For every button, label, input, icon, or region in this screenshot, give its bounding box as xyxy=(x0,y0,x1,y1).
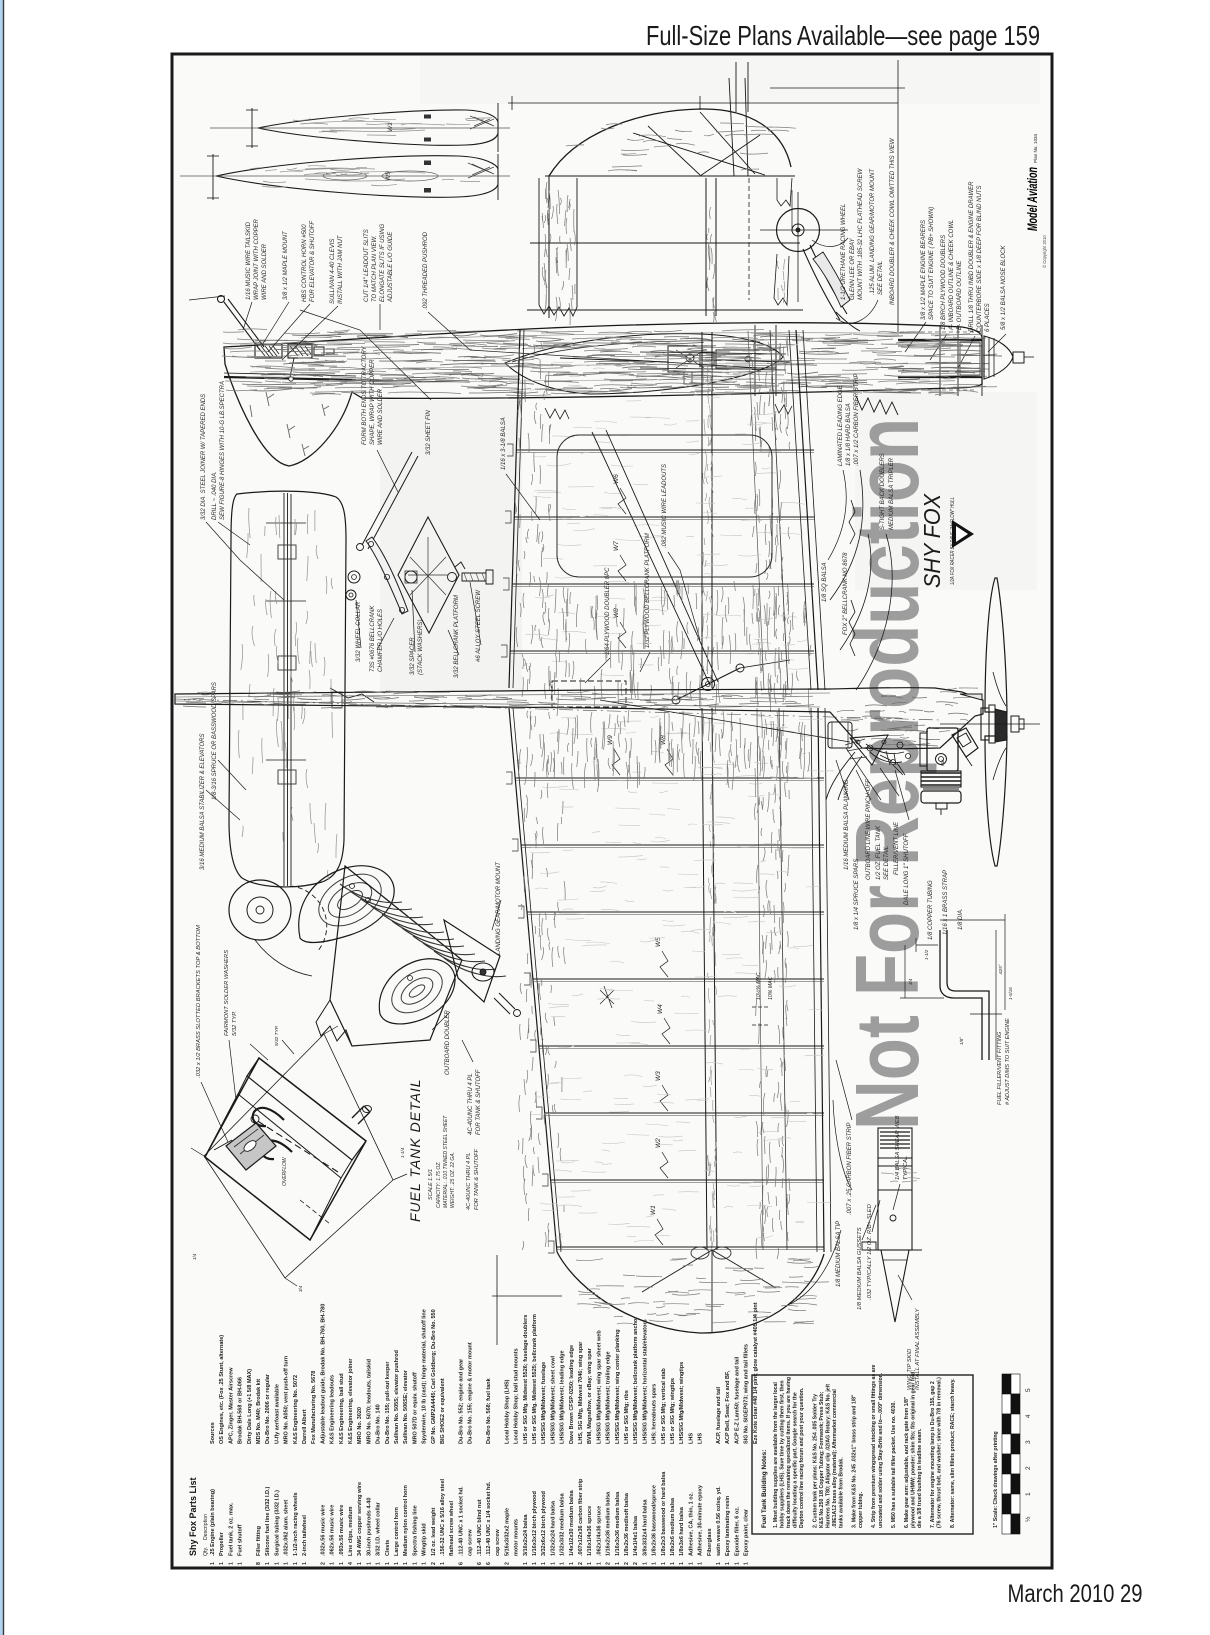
svg-text:K&S Engineering No. 5072: K&S Engineering No. 5072 xyxy=(293,1375,299,1444)
svg-text:OUTBOARD DOUBLER: OUTBOARD DOUBLER xyxy=(445,1010,451,1075)
svg-text:DRILL 1/8 THRU INBD DOUBLER &: DRILL 1/8 THRU INBD DOUBLER & ENGINE DRA… xyxy=(969,181,975,332)
svg-text:SEE DETAIL: SEE DETAIL xyxy=(884,846,890,880)
svg-text:plywood and UHMW; powder; shim: plywood and UHMW; powder; shim fits; fit… xyxy=(911,1370,917,1528)
svg-text:3/8 x 1/2 MAPLE MOUNT: 3/8 x 1/2 MAPLE MOUNT xyxy=(283,230,289,300)
svg-text:6: 6 xyxy=(477,1562,483,1565)
svg-text:MATERIAL: .010 TINNED STEEL: MATERIAL: .010 TINNED STEEL SHEET xyxy=(443,1115,449,1208)
svg-text:Eze Kote clear #40 1/4 pint; g: Eze Kote clear #40 1/4 pint; glow cataly… xyxy=(753,1302,759,1444)
svg-text:3/4: 3/4 xyxy=(298,1285,303,1292)
svg-text:1/8 DIA.: 1/8 DIA. xyxy=(958,908,964,930)
svg-text:MOUNT WITH .185-32 LHC FLATHEA: MOUNT WITH .185-32 LHC FLATHEAD SCREW xyxy=(858,167,864,300)
svg-text:GP No. GMP2A4445; Carl Goldber: GP No. GMP2A4445; Carl Goldberg; Du-Bro … xyxy=(431,1309,437,1444)
svg-text:6 PLACES: 6 PLACES xyxy=(985,303,991,332)
svg-text:5: 5 xyxy=(1025,1388,1032,1392)
svg-text:LHS or SIG Mfg. Midwest 5526;: LHS or SIG Mfg. Midwest 5526; fuselage d… xyxy=(523,1315,529,1444)
svg-text:Du-Bro No. 2006 or regular: Du-Bro No. 2006 or regular xyxy=(265,1373,271,1444)
svg-text:3/8x3/32x4 hard balsa: 3/8x3/32x4 hard balsa xyxy=(642,1498,648,1556)
svg-text:.007 x 1/2 CARBON FIBER STRIP: .007 x 1/2 CARBON FIBER STRIP xyxy=(854,374,860,466)
svg-text:W2: W2 xyxy=(655,1138,662,1148)
svg-text:GLENN LEE OR EBAY: GLENN LEE OR EBAY xyxy=(850,237,856,300)
svg-text:copper tubing.: copper tubing. xyxy=(858,1491,864,1528)
svg-text:.09E1A12 brass alloy (material: .09E1A12 brass alloy (material); Afterma… xyxy=(832,1389,838,1528)
svg-text:1: 1 xyxy=(716,1562,722,1565)
svg-text:Brodak BH-568 or BH-066: Brodak BH-568 or BH-066 xyxy=(238,1377,244,1444)
svg-text:2: 2 xyxy=(606,1562,612,1565)
svg-text:FUEL TANK DETAIL: FUEL TANK DETAIL xyxy=(407,1078,423,1222)
svg-text:3/4: 3/4 xyxy=(908,978,913,985)
svg-text:2: 2 xyxy=(578,1562,584,1565)
svg-text:LHS; hereabouts spars: LHS; hereabouts spars xyxy=(652,1384,658,1444)
svg-text:1: 1 xyxy=(541,1562,547,1565)
svg-text:1: 1 xyxy=(615,1562,621,1565)
svg-text:LHS/SIG Mfg/Midwest; trailing: LHS/SIG Mfg/Midwest; trailing edge xyxy=(606,1351,612,1444)
svg-text:Medium nylon control horn: Medium nylon control horn xyxy=(403,1484,409,1556)
svg-text:1/32x3/32 medium balsa: 1/32x3/32 medium balsa xyxy=(560,1492,566,1556)
svg-text:1/8°: 1/8° xyxy=(959,1037,964,1045)
svg-text:Shy Fox Parts List: Shy Fox Parts List xyxy=(188,1477,198,1556)
svg-text:MEDIUM BALSA TRIPLER: MEDIUM BALSA TRIPLER xyxy=(889,457,895,530)
svg-text:K&S No.250 1/8 Copper Tubing;: K&S No.250 1/8 Copper Tubing; Formwork; … xyxy=(819,1391,825,1528)
svg-text:1: 1 xyxy=(744,1562,750,1565)
svg-text:Description: Description xyxy=(203,1514,209,1540)
svg-text:Fuel Tank Building Notes:: Fuel Tank Building Notes: xyxy=(761,1450,768,1528)
svg-text:.062x1/4x36 spruce: .062x1/4x36 spruce xyxy=(596,1506,602,1556)
svg-text:1/8-3/16 SPRUCE OR BASSWOOD SP: 1/8-3/16 SPRUCE OR BASSWOOD SPARS xyxy=(212,682,218,800)
svg-text:MRO No. 5070; leadouts, tailsk: MRO No. 5070; leadouts, tailskid xyxy=(366,1359,372,1444)
svg-text:3: 3 xyxy=(1025,1440,1032,1444)
svg-text:2: 2 xyxy=(504,1562,510,1565)
svg-text:8: 8 xyxy=(256,1562,262,1565)
svg-text:Sources: Sources xyxy=(210,1422,216,1444)
svg-text:Epoxide filler, 6 oz.: Epoxide filler, 6 oz. xyxy=(734,1506,740,1556)
svg-text:.112-40 UNC x 1 socket hd.: .112-40 UNC x 1 socket hd. xyxy=(458,1486,464,1556)
svg-text:.25 Engine (plain bearing): .25 Engine (plain bearing) xyxy=(210,1489,216,1556)
svg-text:APC, Zinger, Master Airscrew: APC, Zinger, Master Airscrew xyxy=(228,1367,234,1444)
svg-text:30-inch pushrods 4-40: 30-inch pushrods 4-40 xyxy=(366,1498,372,1556)
svg-text:3/32 I.D. wheel collar: 3/32 I.D. wheel collar xyxy=(376,1501,382,1556)
svg-text:5/16x3/32x2 maple: 5/16x3/32x2 maple xyxy=(504,1508,510,1556)
svg-text:1/16 MUSIC WIRE TAILSKID: 1/16 MUSIC WIRE TAILSKID xyxy=(246,221,252,300)
svg-text:© Copyright 2010: © Copyright 2010 xyxy=(1042,235,1047,268)
svg-text:3/32x6x12 birch plywood: 3/32x6x12 birch plywood xyxy=(541,1491,547,1556)
svg-text:Sullivan No. 506SE; elevator: Sullivan No. 506SE; elevator xyxy=(403,1369,409,1444)
svg-text:Surgical tubing (3/32 I.D.): Surgical tubing (3/32 I.D.) xyxy=(274,1490,280,1556)
svg-text:TO MATCH PLAN VIEW.: TO MATCH PLAN VIEW. xyxy=(372,235,378,302)
svg-text:1: 1 xyxy=(688,1562,694,1565)
svg-text:1/4 BALSA SHEAR WEB: 1/4 BALSA SHEAR WEB xyxy=(895,1115,901,1180)
svg-text:1-1/2 URETHANE RACING WHEEL: 1-1/2 URETHANE RACING WHEEL xyxy=(841,204,847,300)
svg-text:1/8x2x36 med/soft balsa: 1/8x2x36 med/soft balsa xyxy=(624,1492,630,1556)
svg-text:3/16 MEDIUM BALSA STABILIZER &: 3/16 MEDIUM BALSA STABILIZER & ELEVATORS xyxy=(200,734,206,871)
svg-text:FILLER/VENT LINE: FILLER/VENT LINE xyxy=(894,821,900,875)
svg-text:1/8 x 1/4 SPRUCE SPARS: 1/8 x 1/4 SPRUCE SPARS xyxy=(854,859,860,930)
svg-text:1-5/16: 1-5/16 xyxy=(1008,987,1013,1000)
svg-text:#6 ALLOY STEEL SCREW: #6 ALLOY STEEL SCREW xyxy=(476,589,482,662)
svg-text:1/16x3x12 birch plywood: 1/16x3x12 birch plywood xyxy=(532,1491,538,1556)
svg-text:1" Scale: Check drawings afte: 1" Scale: Check drawings after printing xyxy=(993,1431,999,1528)
svg-text:7. Alternator for engine mount: 7. Alternator for engine mounting lamp i… xyxy=(930,1381,936,1528)
svg-text:½: ½ xyxy=(1024,1516,1032,1522)
svg-text:W4: W4 xyxy=(657,1004,664,1014)
svg-text:1: 1 xyxy=(394,1562,400,1565)
svg-text:Large control horn: Large control horn xyxy=(394,1506,400,1556)
svg-text:.125 ALUM. LANDING GEAR/MOTOR: .125 ALUM. LANDING GEAR/MOTOR MOUNT xyxy=(870,168,876,295)
svg-text:ACP Bell, Swat; Fox and BF,: ACP Bell, Swat; Fox and BF, xyxy=(725,1370,731,1444)
svg-text:1: 1 xyxy=(550,1562,556,1565)
svg-text:MRO No. A050; vent push-off tu: MRO No. A050; vent push-off turn xyxy=(284,1355,290,1444)
svg-text:6: 6 xyxy=(458,1562,464,1565)
svg-text:Fuel shutoff: Fuel shutoff xyxy=(238,1524,244,1556)
svg-text:SCALE 1.5/1: SCALE 1.5/1 xyxy=(428,1169,434,1200)
svg-text:SIG No. SIGEP073; wing and tai: SIG No. SIGEP073; wing and tail fillets xyxy=(744,1344,750,1444)
svg-text:WEIGHT: .25 OZ. 22 GA.: WEIGHT: .25 OZ. 22 GA. xyxy=(450,1152,456,1208)
svg-text:SULLIVAN 4-40 CLEVIS: SULLIVAN 4-40 CLEVIS xyxy=(330,239,336,304)
svg-text:1: 1 xyxy=(238,1562,244,1565)
svg-text:1/32x2x24 hard balsa: 1/32x2x24 hard balsa xyxy=(550,1500,556,1556)
svg-text:5/32 TYP.: 5/32 TYP. xyxy=(232,1011,238,1036)
svg-text:LHS or SIG Mfg; ribs: LHS or SIG Mfg; ribs xyxy=(624,1390,630,1444)
svg-text:.112-40 UNC x 1/4 socket hd.: .112-40 UNC x 1/4 socket hd. xyxy=(486,1481,492,1556)
svg-text:Du-Bro No. 140: Du-Bro No. 140 xyxy=(376,1404,382,1444)
svg-text:MRO 507D or equiv. shutoff: MRO 507D or equiv. shutoff xyxy=(412,1372,418,1444)
svg-text:3/16x2x24 balsa: 3/16x2x24 balsa xyxy=(523,1513,529,1556)
svg-text:1: 1 xyxy=(523,1562,529,1565)
svg-text:10% MAC: 10% MAC xyxy=(768,976,774,1000)
svg-text:LHS/SIG Mfg/Midwest; leading e: LHS/SIG Mfg/Midwest; leading edge xyxy=(560,1350,566,1444)
svg-text:ACP, fuselage and tail: ACP, fuselage and tail xyxy=(716,1386,722,1444)
svg-text:MDS No. M40; Brodak kit: MDS No. M40; Brodak kit xyxy=(256,1379,262,1444)
svg-text:1: 1 xyxy=(596,1562,602,1565)
svg-text:.032x.56 music wire: .032x.56 music wire xyxy=(320,1505,326,1556)
svg-text:2: 2 xyxy=(1025,1466,1032,1470)
svg-text:K&S Engineering leadouts: K&S Engineering leadouts xyxy=(330,1375,336,1444)
svg-text:W1: W1 xyxy=(650,1205,657,1215)
svg-text:FORM BOTH ENDS TO TRACTORY: FORM BOTH ENDS TO TRACTORY xyxy=(362,345,368,445)
svg-text:Sullivan No. 505S; elevator pu: Sullivan No. 505S; elevator pushrod xyxy=(394,1350,400,1444)
svg-text:SHAPE, WRAP WITH COPPER: SHAPE, WRAP WITH COPPER xyxy=(370,359,376,445)
svg-text:1/16x2x36 medium balsa: 1/16x2x36 medium balsa xyxy=(606,1491,612,1556)
svg-text:Local Hobby Shop (LHS): Local Hobby Shop (LHS) xyxy=(504,1379,510,1444)
svg-text:1/16x1/4x36 spruce: 1/16x1/4x36 spruce xyxy=(587,1506,593,1556)
svg-text:LHS/SIG Mfg/Midwest; sheet cow: LHS/SIG Mfg/Midwest; sheet cowl xyxy=(550,1356,556,1444)
svg-text:track down the remaining speci: track down the remaining specialized ite… xyxy=(786,1377,792,1528)
svg-text:1: 1 xyxy=(385,1562,391,1565)
svg-text:motor mounts: motor mounts xyxy=(514,1519,520,1556)
svg-text:cap screw: cap screw xyxy=(468,1529,474,1556)
svg-text:Plan No. 1034: Plan No. 1034 xyxy=(1033,133,1038,163)
svg-text:1: 1 xyxy=(210,1562,216,1565)
svg-text:W8: W8 xyxy=(613,608,620,618)
svg-text:1/8x2x36 basswood/spruce: 1/8x2x36 basswood/spruce xyxy=(652,1485,658,1556)
svg-text:LHS/SIG Mfg/Midwest; wing spar: LHS/SIG Mfg/Midwest; wing spar sheet web xyxy=(596,1330,602,1444)
svg-text:HBS CONTROL HORN #500: HBS CONTROL HORN #500 xyxy=(302,224,308,302)
svg-text:Adhesive, 30-minute epoxy: Adhesive, 30-minute epoxy xyxy=(698,1484,704,1556)
svg-text:1-1/2-inch racing wheels: 1-1/2-inch racing wheels xyxy=(293,1492,299,1556)
svg-text:(76 screw, thrust bolt, and wa: (76 screw, thrust bolt, and washer; sinc… xyxy=(937,1377,943,1528)
svg-text:4C-40UNC THRU 4 PL: 4C-40UNC THRU 4 PL xyxy=(468,1073,474,1135)
svg-text:CHAMFER L/O HOLES: CHAMFER L/O HOLES xyxy=(378,609,384,672)
svg-text:1/8 BIRCH PLYWOOD DOUBLERS: 1/8 BIRCH PLYWOOD DOUBLERS xyxy=(941,235,947,330)
svg-text:Clevis: Clevis xyxy=(385,1540,391,1556)
svg-text:1: 1 xyxy=(725,1562,731,1565)
svg-text:4. Strip from premium wingspre: 4. Strip from premium wingspread stockin… xyxy=(871,1364,877,1528)
svg-text:10½% MAC: 10½% MAC xyxy=(755,972,762,1000)
svg-text:1: 1 xyxy=(330,1562,336,1565)
svg-text:1: 1 xyxy=(265,1562,271,1565)
svg-text:3/8 x 1/2 MAPLE ENGINE BEARERS: 3/8 x 1/2 MAPLE ENGINE BEARERS xyxy=(921,220,927,320)
svg-text:INBOARD DOUBLER & CHEEK COWL O: INBOARD DOUBLER & CHEEK COWL OMITTED THI… xyxy=(890,137,896,305)
svg-text:1/8 COPPER TUBING: 1/8 COPPER TUBING xyxy=(928,880,934,940)
svg-text:.093x.56 music wire: .093x.56 music wire xyxy=(339,1505,345,1556)
svg-text:1: 1 xyxy=(679,1562,685,1565)
svg-text:Du-Bro No. 155; pull-out keepe: Du-Bro No. 155; pull-out keeper xyxy=(385,1361,391,1444)
svg-text:ELONGATE SLITS IF USING: ELONGATE SLITS IF USING xyxy=(380,224,386,302)
svg-text:1/4: 1/4 xyxy=(192,1253,197,1260)
svg-text:.007x1/2x36 carbon fiber strip: .007x1/2x36 carbon fiber strip xyxy=(578,1478,584,1556)
svg-text:1: 1 xyxy=(293,1562,299,1565)
svg-text:LHS/SIG Mfg/Midwest; horizonta: LHS/SIG Mfg/Midwest; horizontal stab/ele… xyxy=(642,1319,648,1444)
svg-text:Full-Size Plans Available—see: Full-Size Plans Available—see page 159 xyxy=(646,20,1040,51)
svg-text:tanks available from Brodak.: tanks available from Brodak. xyxy=(839,1457,845,1528)
svg-text:Dirty Dale Long (+1 5/8 MAX): Dirty Dale Long (+1 5/8 MAX) xyxy=(247,1369,253,1444)
svg-text:1-1/2: 1-1/2 xyxy=(924,949,929,960)
svg-text:satin weave 0.56 oz/sq. yd.: satin weave 0.56 oz/sq. yd. xyxy=(716,1486,722,1556)
svg-text:SPACE TO SUIT ENGINE ( PB+ SHO: SPACE TO SUIT ENGINE ( PB+ SHOWN) xyxy=(929,207,935,320)
svg-text:uncoated and solder using Stay: uncoated and solder using Stay-Brite and… xyxy=(878,1372,884,1528)
svg-text:Fox Manufacturing No. 5678: Fox Manufacturing No. 5678 xyxy=(311,1371,317,1444)
svg-text:8. Alternator: same, slim fill: 8. Alternator: same, slim fillets produc… xyxy=(950,1378,956,1528)
svg-text:hobby suppliers (LHS). Save ti: hobby suppliers (LHS). Save time by cutt… xyxy=(780,1380,786,1528)
svg-text:1: 1 xyxy=(403,1562,409,1565)
svg-text:1-1/4: 1-1/4 xyxy=(400,1147,405,1158)
svg-text:DRILL ~ .040 DIA.: DRILL ~ .040 DIA. xyxy=(212,471,218,520)
svg-text:1. Most building supplies are: 1. Most building supplies are available … xyxy=(773,1382,779,1528)
svg-text:Propeller: Propeller xyxy=(219,1531,225,1556)
svg-text:Spyderwire, 10 lb (cast); hing: Spyderwire, 10 lb (cast); hinge material… xyxy=(422,1309,428,1444)
svg-text:Dayton control line racing for: Dayton control line racing forum and pos… xyxy=(799,1387,805,1528)
svg-text:1: 1 xyxy=(274,1562,280,1565)
svg-text:5/32 TYP.: 5/32 TYP. xyxy=(274,1025,280,1046)
svg-text:Du-Bro No. 568; fuel tank: Du-Bro No. 568; fuel tank xyxy=(486,1377,492,1444)
svg-text:LHS or SIG Mfg; vertical stab: LHS or SIG Mfg; vertical stab xyxy=(661,1368,667,1444)
svg-text:.625°: .625° xyxy=(998,964,1003,975)
svg-text:WIRE AND SOLDER: WIRE AND SOLDER xyxy=(262,243,268,300)
svg-text:March 2010 29: March 2010 29 xyxy=(1008,1580,1143,1608)
svg-text:LAMINATED LEADING EDGE: LAMINATED LEADING EDGE xyxy=(838,384,844,466)
svg-text:WRAP JOINT WITH COPPER: WRAP JOINT WITH COPPER xyxy=(254,219,260,300)
svg-text:Epoxy paint, clear: Epoxy paint, clear xyxy=(744,1508,750,1556)
svg-text:Qty.: Qty. xyxy=(203,1547,209,1556)
svg-text:Epoxy laminating resin: Epoxy laminating resin xyxy=(725,1495,731,1556)
svg-text:Du-Bro No. 155; engine & motor: Du-Bro No. 155; engine & motor mount xyxy=(468,1342,474,1444)
svg-text:Fuel tank, 2 oz. max.: Fuel tank, 2 oz. max. xyxy=(228,1502,234,1556)
svg-text:1/8x2x6 medium balsa: 1/8x2x6 medium balsa xyxy=(670,1497,676,1556)
svg-text:.007 x .25 CARBON FIBER STRIP: .007 x .25 CARBON FIBER STRIP xyxy=(847,1123,853,1215)
svg-text:1: 1 xyxy=(652,1562,658,1565)
svg-text:LHS/SIG Mfg/Midwest; fuselage: LHS/SIG Mfg/Midwest; fuselage xyxy=(541,1362,547,1444)
svg-text:3. Make from K&S No. 245 .032x: 3. Make from K&S No. 245 .032x1" brass s… xyxy=(852,1394,858,1528)
svg-text:1: 1 xyxy=(569,1562,575,1565)
svg-text:LHS: LHS xyxy=(698,1433,704,1444)
svg-text:INSTALL WITH JAM NUT: INSTALL WITH JAM NUT xyxy=(338,234,344,304)
svg-text:1: 1 xyxy=(560,1562,566,1565)
svg-text:LANDING GEAR/MOTOR MOUNT: LANDING GEAR/MOTOR MOUNT xyxy=(496,861,502,955)
svg-text:Hardens No. T80; Alligator cli: Hardens No. T80; Alligator clip .02/AG R… xyxy=(825,1384,831,1528)
svg-text:K&S Engineering, elevator join: K&S Engineering, elevator joiner xyxy=(348,1358,354,1444)
svg-text:FOX: FOX xyxy=(941,759,945,766)
svg-text:(STACK WASHERS): (STACK WASHERS) xyxy=(418,620,424,675)
svg-text:OVERFLOW: OVERFLOW xyxy=(282,1156,288,1186)
svg-text:SHY FOX: SHY FOX xyxy=(919,492,945,588)
svg-text:LHS: LHS xyxy=(688,1433,694,1444)
svg-text:6. Make gear arm: adjustable,: 6. Make gear arm: adjustable, and rack g… xyxy=(904,1396,910,1528)
svg-text:LHS/SIG Mfg/Midwest; wing cent: LHS/SIG Mfg/Midwest; wing center plankin… xyxy=(615,1329,621,1444)
svg-text:U-fly aerfoast available: U-fly aerfoast available xyxy=(274,1384,280,1444)
svg-text:SEE DETAIL: SEE DETAIL xyxy=(878,261,884,295)
svg-text:1: 1 xyxy=(661,1562,667,1565)
svg-text:1/16 x 1 BRASS STRAP: 1/16 x 1 BRASS STRAP xyxy=(943,870,949,935)
svg-text:LHS or SIG Mfg. Midwest 5525;: LHS or SIG Mfg. Midwest 5525; bellcrank … xyxy=(532,1314,538,1444)
svg-text:OS Engines, etc. (Fox .25 Stun: OS Engines, etc. (Fox .25 Stunt, alterna… xyxy=(219,1335,225,1444)
svg-text:FOX 2" BELLCRANK NO 8678: FOX 2" BELLCRANK NO 8678 xyxy=(843,552,849,635)
svg-text:FOR TANK & SHUTOFF: FOR TANK & SHUTOFF xyxy=(476,1069,482,1135)
svg-text:Silicone fuel line (3/32 I.D.): Silicone fuel line (3/32 I.D.) xyxy=(265,1486,271,1556)
svg-text:FUEL FILLER/VENT FITTING: FUEL FILLER/VENT FITTING xyxy=(997,1031,1003,1105)
svg-text:# ADJUST DIMS TO SUIT ENGINE: # ADJUST DIMS TO SUIT ENGINE xyxy=(1005,1018,1011,1105)
svg-text:34 AWG copper serving wire: 34 AWG copper serving wire xyxy=(357,1482,363,1556)
svg-text:flathead screw wheel: flathead screw wheel xyxy=(449,1501,455,1556)
svg-text:1: 1 xyxy=(440,1562,446,1565)
svg-text:Darrell Albert: Darrell Albert xyxy=(302,1409,308,1444)
svg-text:LHS/SIG Mfg/Midwest; wingtips: LHS/SIG Mfg/Midwest; wingtips xyxy=(679,1362,685,1444)
svg-text:.112-40 UNC blind nut: .112-40 UNC blind nut xyxy=(477,1499,483,1556)
svg-text:1: 1 xyxy=(412,1562,418,1565)
svg-text:1: 1 xyxy=(284,1562,290,1565)
svg-text:S-TIGHT BACK DOUBLERS: S-TIGHT BACK DOUBLERS xyxy=(880,453,886,530)
svg-text:1: 1 xyxy=(366,1562,372,1565)
svg-text:2. Custom tank per plans: K&S: 2. Custom tank per plans: K&S No. 254 .0… xyxy=(812,1394,818,1528)
svg-text:K&S Engineering, ball stud: K&S Engineering, ball stud xyxy=(339,1373,345,1444)
svg-text:COUNTERBORE SIDE x 1/8 DEEP FO: COUNTERBORE SIDE x 1/8 DEEP FOR BLIND NU… xyxy=(977,186,983,332)
svg-text:1/16 x 3-1/8 BALSA: 1/16 x 3-1/8 BALSA xyxy=(501,417,507,470)
svg-text:1/8x3x6 hard balsa: 1/8x3x6 hard balsa xyxy=(679,1506,685,1556)
svg-text:3/32 DIA. STEEL JOINER W/ TAPE: 3/32 DIA. STEEL JOINER W/ TAPERED ENDS xyxy=(201,394,207,520)
svg-text:3/32 SPACER: 3/32 SPACER xyxy=(410,637,416,675)
svg-text:BVM, Magnaflow, or eBay; wing: BVM, Magnaflow, or eBay; wing spar xyxy=(587,1347,593,1444)
svg-text:Adjustable leadout guide, Brod: Adjustable leadout guide, Brodak No. BH-… xyxy=(320,1304,326,1444)
svg-text:.032 x 1/2 BRASS SLOTTED BRACK: .032 x 1/2 BRASS SLOTTED BRACKETS TOP & … xyxy=(196,925,202,1078)
svg-text:BIG SHOE2 or equivalent: BIG SHOE2 or equivalent xyxy=(440,1378,446,1444)
svg-text:DALE LONG 1" SHUTOFF: DALE LONG 1" SHUTOFF xyxy=(904,833,910,905)
svg-text:LHS, SIG Mfg, Midwest 7046; wi: LHS, SIG Mfg, Midwest 7046; wing spar xyxy=(578,1341,584,1444)
svg-text:Model Aviation: Model Aviation xyxy=(1025,167,1040,231)
svg-text:1/8 SQ BALSA: 1/8 SQ BALSA xyxy=(822,562,828,602)
svg-text:5/8 x 1/2 BALSA NOSE BLOCK: 5/8 x 1/2 BALSA NOSE BLOCK xyxy=(1001,245,1007,330)
svg-text:1: 1 xyxy=(422,1562,428,1565)
svg-text:1/2 OZ. FUEL TANK: 1/2 OZ. FUEL TANK xyxy=(876,825,882,880)
svg-text:Wingtip skid: Wingtip skid xyxy=(422,1523,428,1556)
svg-text:5. M50 has a suitable tail fil: 5. M50 has a suitable tail filler packet… xyxy=(891,1401,897,1528)
svg-text:3/32 BELLCRANK PLATFORM: 3/32 BELLCRANK PLATFORM xyxy=(454,595,460,678)
svg-text:3/32 SHEET FIN: 3/32 SHEET FIN xyxy=(426,410,432,455)
svg-text:4: 4 xyxy=(1025,1414,1032,1418)
svg-text:WIRE AND SOLDER: WIRE AND SOLDER xyxy=(378,388,384,445)
svg-text:Dave Brown CFSP-0250; leading: Dave Brown CFSP-0250; leading edge xyxy=(569,1345,575,1444)
svg-text:.092 THREADED PUSHROD: .092 THREADED PUSHROD xyxy=(423,231,429,310)
svg-text:W7: W7 xyxy=(613,541,620,551)
svg-text:1/4x1/2x30 medium balsa: 1/4x1/2x30 medium balsa xyxy=(569,1489,575,1556)
svg-text:2: 2 xyxy=(431,1562,437,1565)
svg-text:2: 2 xyxy=(320,1562,326,1565)
svg-text:2: 2 xyxy=(633,1562,639,1565)
svg-text:1: 1 xyxy=(1025,1492,1032,1496)
svg-text:1/8x2x3 basswood or hard balsa: 1/8x2x3 basswood or hard balsa xyxy=(661,1471,667,1556)
svg-text:FOR TANK & SHUTOFF: FOR TANK & SHUTOFF xyxy=(474,1148,480,1210)
svg-text:B- OUTBOARD OUTLINE: B- OUTBOARD OUTLINE xyxy=(957,260,963,330)
svg-text:Spectra fishing line: Spectra fishing line xyxy=(412,1505,418,1556)
svg-text:1: 1 xyxy=(339,1562,345,1565)
svg-text:.032x.062 alum. sheet: .032x.062 alum. sheet xyxy=(284,1500,290,1556)
svg-text:2-inch tailwheel: 2-inch tailwheel xyxy=(302,1515,308,1556)
svg-text:Adhesive, CA, thin, 1 oz.: Adhesive, CA, thin, 1 oz. xyxy=(688,1492,694,1556)
svg-text:1: 1 xyxy=(302,1562,308,1565)
svg-text:Du-Bro No. 552; engine and gea: Du-Bro No. 552; engine and gear xyxy=(458,1358,464,1444)
svg-text:Fiberglass: Fiberglass xyxy=(707,1528,713,1556)
svg-text:A- INBOARD OUTLINE & CHEEK COW: A- INBOARD OUTLINE & CHEEK COWL xyxy=(949,220,955,331)
svg-text:Line clips, medium: Line clips, medium xyxy=(348,1506,354,1556)
svg-text:6: 6 xyxy=(486,1562,492,1565)
svg-text:1: 1 xyxy=(532,1562,538,1565)
svg-text:SEW FIGURE-8 HINGES WITH 10-G: SEW FIGURE-8 HINGES WITH 10-G LB.SPECTRA xyxy=(220,381,226,520)
svg-text:1/8 x 1/8 HARD BALSA: 1/8 x 1/8 HARD BALSA xyxy=(846,403,852,466)
svg-text:4: 4 xyxy=(348,1562,354,1565)
svg-text:FAIRMONT SOLDER WASHERS: FAIRMONT SOLDER WASHERS xyxy=(224,950,230,1036)
svg-text:TYPICAL: TYPICAL xyxy=(903,1156,909,1180)
svg-text:1: 1 xyxy=(734,1562,740,1565)
svg-text:ACP E-Z Lam50; fuselage and ta: ACP E-Z Lam50; fuselage and tail xyxy=(734,1356,740,1444)
svg-text:1/16x3x36 medium balsa: 1/16x3x36 medium balsa xyxy=(615,1491,621,1556)
svg-text:OUTBOARD LINE WIRE PINCH-OFF: OUTBOARD LINE WIRE PINCH-OFF xyxy=(866,779,872,880)
svg-text:1: 1 xyxy=(357,1562,363,1565)
svg-text:LHS/SIG Mfg/Midwest; bellcrank: LHS/SIG Mfg/Midwest; bellcrank platform … xyxy=(633,1316,639,1444)
svg-text:4C-40UNC THRU 4 PL: 4C-40UNC THRU 4 PL xyxy=(466,1152,472,1210)
svg-text:1: 1 xyxy=(219,1562,225,1565)
svg-text:MRO No. 3020: MRO No. 3020 xyxy=(357,1407,363,1444)
svg-text:CUT 1/4" LEADOUT SLITS: CUT 1/4" LEADOUT SLITS xyxy=(364,229,370,302)
svg-text:1: 1 xyxy=(376,1562,382,1565)
svg-text:73S #0676 BELLCRANK: 73S #0676 BELLCRANK xyxy=(370,605,376,672)
svg-text:cap screw: cap screw xyxy=(495,1529,501,1556)
svg-text:2: 2 xyxy=(624,1562,630,1565)
svg-text:FOR ELEVATOR & SHUTOFF: FOR ELEVATOR & SHUTOFF xyxy=(310,221,316,302)
svg-text:.032 TYPICALLY 1/2 OZ. RIB+ S: .032 TYPICALLY 1/2 OZ. RIB+ SLED xyxy=(867,1204,873,1300)
svg-text:W3: W3 xyxy=(655,1071,662,1081)
svg-text:.082 MUSIC WIRE LEADOUTS: .082 MUSIC WIRE LEADOUTS xyxy=(662,464,668,548)
svg-text:CAPACITY: 1.75 OZ.: CAPACITY: 1.75 OZ. xyxy=(436,1161,442,1208)
svg-text:1: 1 xyxy=(642,1562,648,1565)
svg-text:Filler fitting: Filler fitting xyxy=(256,1526,262,1556)
svg-text:die a 3/8 trued bushing in lea: die a 3/8 trued bushing in leadline seam… xyxy=(917,1428,923,1528)
svg-text:1: 1 xyxy=(670,1562,676,1565)
svg-text:W5: W5 xyxy=(655,937,662,947)
svg-text:LHS or SIG Mfg; wingtips: LHS or SIG Mfg; wingtips xyxy=(670,1378,676,1444)
svg-text:1: 1 xyxy=(228,1562,234,1565)
svg-text:1: 1 xyxy=(698,1562,704,1565)
svg-text:.156-32 UNC x 5/16 alloy steel: .156-32 UNC x 5/16 alloy steel xyxy=(440,1478,446,1556)
svg-text:difficulty locating a specific: difficulty locating a specific part, Goo… xyxy=(793,1392,799,1528)
svg-text:Local Hobby Shop; ball stud mo: Local Hobby Shop; ball stud mounts xyxy=(514,1348,520,1444)
svg-text:.062x.56 music wire: .062x.56 music wire xyxy=(330,1505,336,1556)
